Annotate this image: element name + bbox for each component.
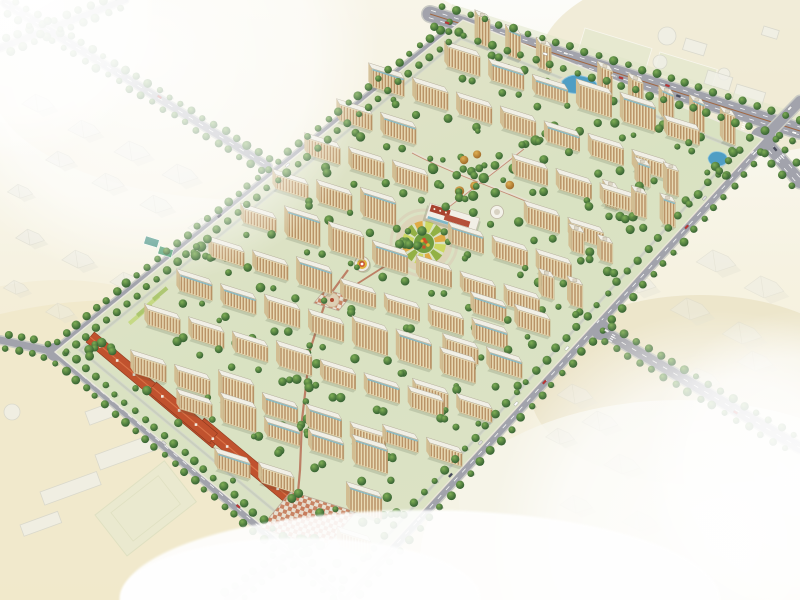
apartment-tower <box>538 268 554 302</box>
masterplan-rendering <box>0 0 800 600</box>
apartment-tower <box>568 223 584 257</box>
rendering-canvas <box>0 0 800 600</box>
